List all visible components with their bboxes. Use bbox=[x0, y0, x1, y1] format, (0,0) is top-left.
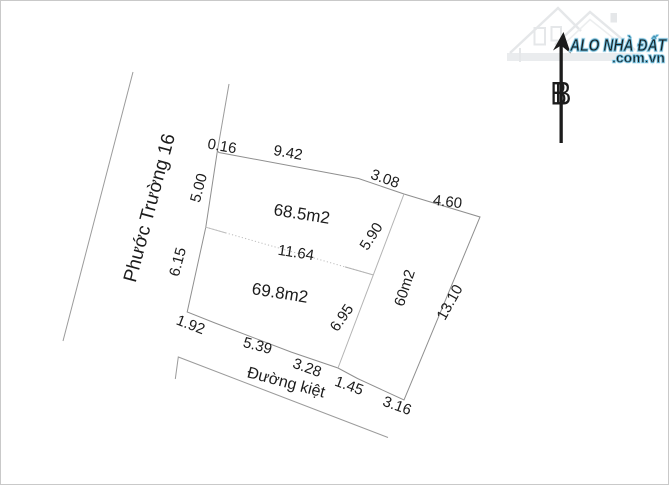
svg-text:B: B bbox=[555, 76, 571, 112]
svg-text:4.60: 4.60 bbox=[432, 192, 463, 212]
svg-text:.com.vn: .com.vn bbox=[612, 50, 665, 66]
